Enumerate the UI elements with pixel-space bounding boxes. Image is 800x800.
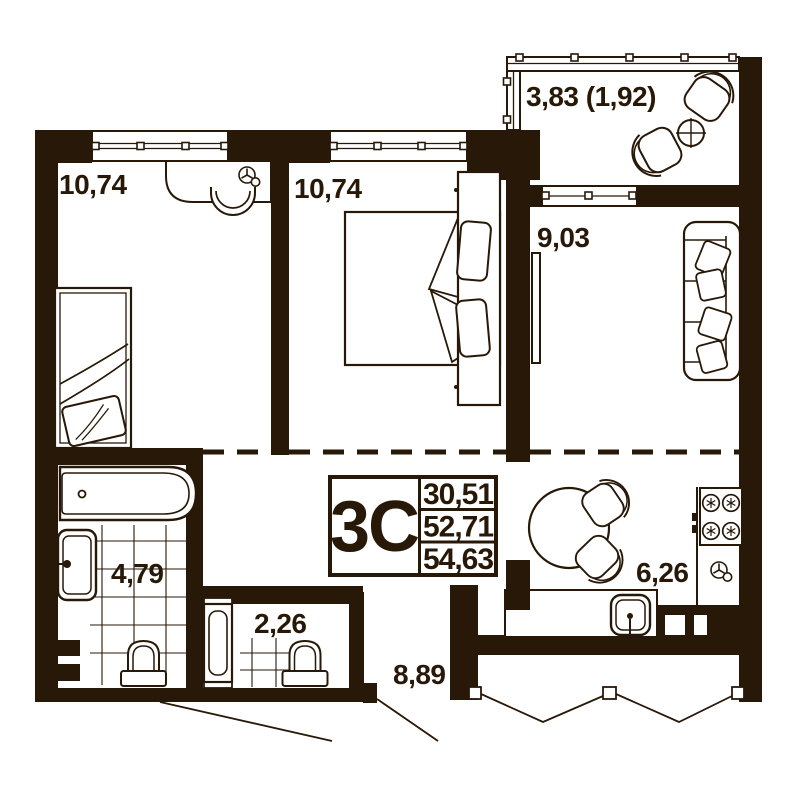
balcony-area-label: 3,83 (1,92) — [526, 81, 656, 112]
entry-door-lines — [160, 699, 438, 741]
total-area-with-balcony-value: 54,63 — [423, 543, 493, 576]
window-bedroom2 — [330, 131, 467, 161]
balcony-glazing-left — [504, 71, 521, 130]
sofa-icon — [684, 222, 740, 380]
wall-stub-kitchen — [506, 560, 530, 610]
toilet-icon — [121, 641, 166, 686]
toilet-icon-wc — [283, 641, 328, 686]
floor-plan: 3С 30,51 52,71 54,63 10,74 10,74 3,83 (1… — [0, 0, 800, 800]
total-area-value: 52,71 — [423, 511, 493, 544]
double-bed-icon — [345, 172, 500, 405]
hallway-area-label: 8,89 — [393, 659, 446, 690]
fan-icon-kitchen — [711, 562, 732, 581]
stove-icon — [700, 488, 742, 545]
bathtub-icon — [60, 467, 196, 520]
bathroom-sink-icon — [52, 530, 96, 600]
kitchen-sink-icon — [611, 595, 650, 637]
wc-area-label: 2,26 — [254, 608, 307, 639]
kitchen-area-label: 6,26 — [636, 557, 689, 588]
single-bed-icon — [55, 288, 131, 448]
dining-table-chairs — [529, 472, 637, 591]
loggia-below-outline — [469, 687, 744, 722]
tv-icon — [532, 253, 540, 363]
living-area-value: 30,51 — [423, 478, 493, 511]
apartment-type-label: 3С — [330, 487, 419, 567]
info-box: 3С 30,51 52,71 54,63 — [330, 477, 496, 576]
bathroom-area-label: 4,79 — [111, 558, 164, 589]
window-living-balcony — [542, 186, 637, 206]
desk-chair-icon — [211, 187, 255, 215]
floor-plan-drawing: 3С 30,51 52,71 54,63 10,74 10,74 3,83 (1… — [0, 0, 800, 800]
window-bedroom1 — [92, 131, 228, 161]
bedroom1-area-label: 10,74 — [59, 169, 127, 200]
balcony-glazing-top — [507, 54, 739, 71]
living-area-label: 9,03 — [537, 222, 590, 253]
bedroom2-area-label: 10,74 — [294, 173, 362, 204]
